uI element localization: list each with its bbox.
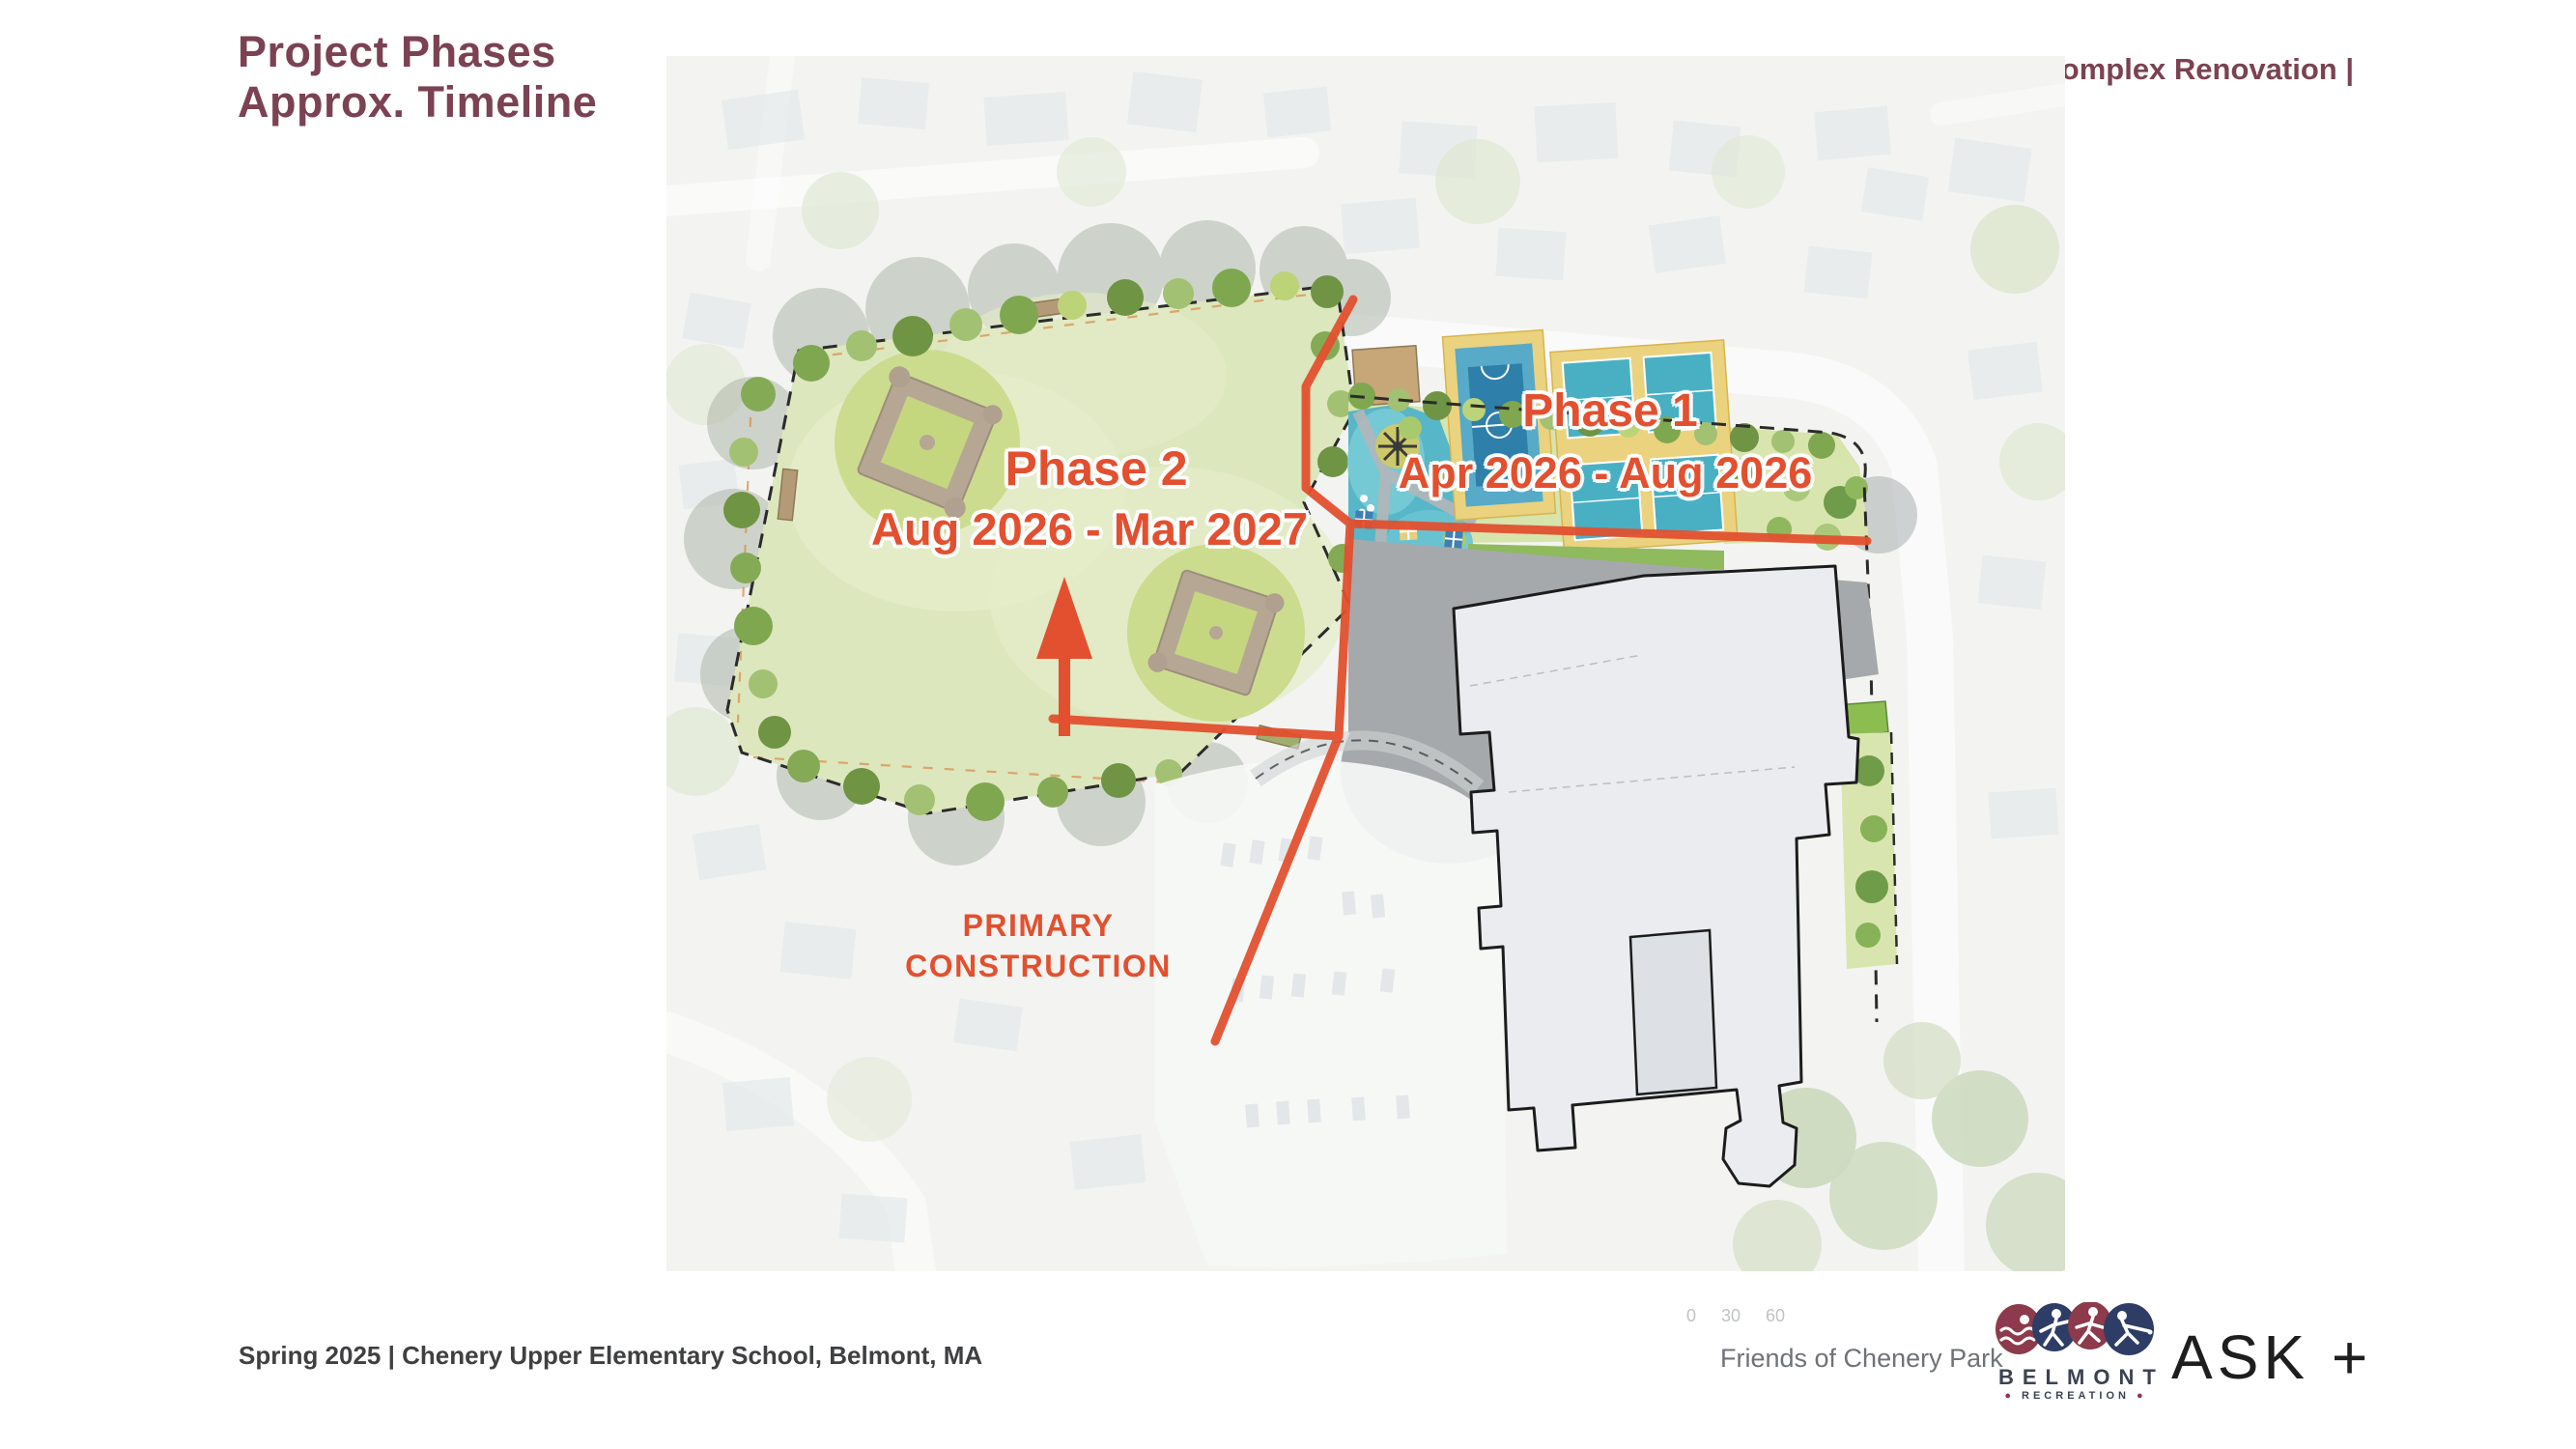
hockey-player-icon (2104, 1303, 2154, 1355)
belmont-logo-icons (1993, 1302, 2159, 1358)
phase1-dates: Apr 2026 - Aug 2026 (1316, 448, 1895, 498)
tennis-courts (1550, 340, 1738, 553)
phase2-label: Phase 2 (855, 440, 1338, 497)
belmont-logo-name: BELMONT (1993, 1365, 2159, 1390)
primary-construction-line1: PRIMARY (845, 906, 1231, 947)
belmont-sub-text: RECREATION (2022, 1390, 2130, 1402)
belmont-sub-dot-left: ● (2004, 1390, 2015, 1402)
footer-credit: Spring 2025 | Chenery Upper Elementary S… (239, 1341, 982, 1371)
belmont-sub-dot-right: ● (2137, 1390, 2147, 1402)
belmont-recreation-logo: BELMONT ● RECREATION ● (1993, 1302, 2159, 1402)
scale-tick-0: 0 (1686, 1306, 1696, 1326)
scale-tick-30: 30 (1721, 1306, 1741, 1326)
belmont-logo-sub: ● RECREATION ● (1993, 1390, 2159, 1402)
parking-lot (1154, 740, 1507, 1266)
friends-credit: Friends of Chenery Park (1720, 1344, 2003, 1374)
phase2-dates: Aug 2026 - Mar 2027 (800, 502, 1379, 555)
site-plan-map (666, 56, 2065, 1271)
primary-construction-label: PRIMARY CONSTRUCTION (845, 906, 1231, 986)
phase1-label: Phase 1 (1369, 384, 1852, 438)
map-scale-bar: 0 30 60 (1686, 1306, 1785, 1326)
scale-tick-60: 60 (1766, 1306, 1785, 1326)
site-plan-graphic (666, 56, 2065, 1271)
ask-logo: ASK + (2171, 1321, 2372, 1393)
primary-construction-line2: CONSTRUCTION (845, 947, 1231, 987)
